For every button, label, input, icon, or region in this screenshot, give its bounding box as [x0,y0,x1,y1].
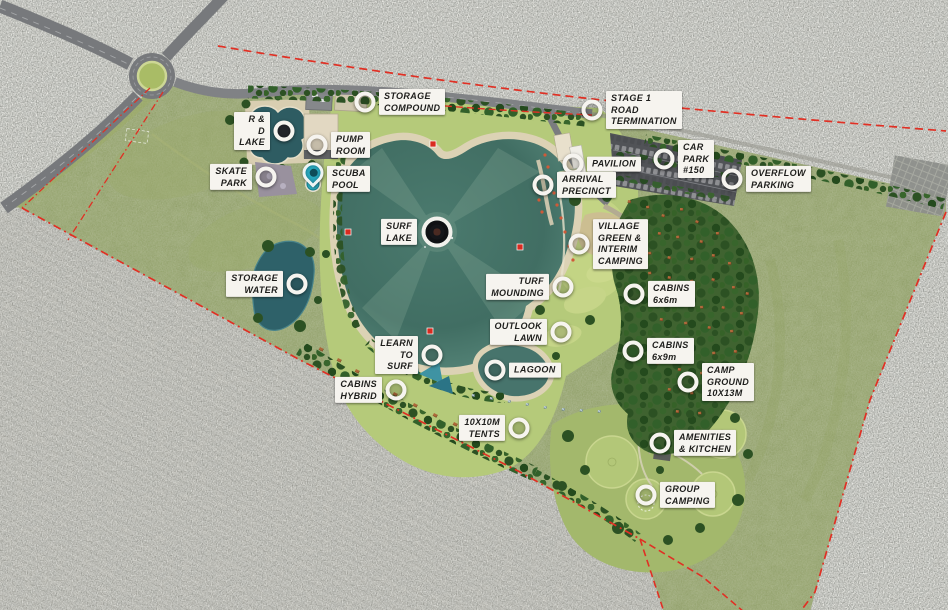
map-marker-icon[interactable] [650,433,671,454]
map-label-text: STAGE 1 ROAD TERMINATION [606,91,682,129]
map-marker-icon[interactable] [256,167,277,188]
map-label-text: OVERFLOW PARKING [746,166,811,192]
map-label-text: LEARN TO SURF [375,336,418,374]
map-marker-icon[interactable] [386,380,407,401]
map-label-text: PUMP ROOM [331,132,370,158]
map-label-text: TURF MOUNDING [486,274,549,300]
map-marker-icon[interactable] [654,149,675,170]
map-label-text: 10X10M TENTS [459,415,505,441]
map-marker-icon[interactable] [582,100,603,121]
map-marker-icon[interactable] [636,485,657,506]
map-marker-icon[interactable] [623,341,644,362]
map-label-text: PAVILION [587,157,641,172]
map-marker-icon[interactable] [422,345,443,366]
map-marker-icon[interactable] [569,234,590,255]
map-marker-icon[interactable] [551,322,572,343]
map-marker-icon[interactable] [287,274,308,295]
map-marker-icon[interactable] [509,418,530,439]
map-marker-icon[interactable] [307,135,328,156]
map-label-text: CAR PARK #150 [678,140,714,178]
map-marker-icon[interactable] [274,121,295,142]
map-marker-icon[interactable] [678,372,699,393]
map-label-text: AMENITIES & KITCHEN [674,430,736,456]
map-marker-icon[interactable] [722,169,743,190]
map-marker-icon[interactable] [298,158,328,188]
map-label-text: GROUP CAMPING [660,482,715,508]
map-annotations: STORAGE COMPOUND STAGE 1 ROAD TERMINATIO… [0,0,948,610]
map-label-text: LAGOON [509,363,561,378]
map-marker-icon[interactable] [533,175,554,196]
map-marker-icon[interactable] [624,284,645,305]
map-label-text: CABINS HYBRID [335,377,382,403]
map-label-text: STORAGE COMPOUND [379,89,445,115]
masterplan-canvas: STORAGE COMPOUND STAGE 1 ROAD TERMINATIO… [0,0,948,610]
map-label-text: SCUBA POOL [327,166,370,192]
map-marker-icon[interactable] [553,277,574,298]
map-marker-icon[interactable] [355,92,376,113]
map-label-text: VILLAGE GREEN & INTERIM CAMPING [593,219,648,269]
map-label-text: CABINS 6x6m [648,281,695,307]
map-label-text: ARRIVAL PRECINCT [557,172,616,198]
map-label-text: STORAGE WATER [226,271,283,297]
map-label-text: SURF LAKE [381,219,417,245]
map-marker-icon[interactable] [485,360,506,381]
map-label-text: SKATE PARK [210,164,252,190]
map-label-text: CABINS 6x9m [647,338,694,364]
map-label-text: OUTLOOK LAWN [490,319,547,345]
map-label-text: CAMP GROUND 10X13M [702,363,754,401]
map-label-text: R & D LAKE [234,112,270,150]
map-marker-icon[interactable] [426,221,449,244]
